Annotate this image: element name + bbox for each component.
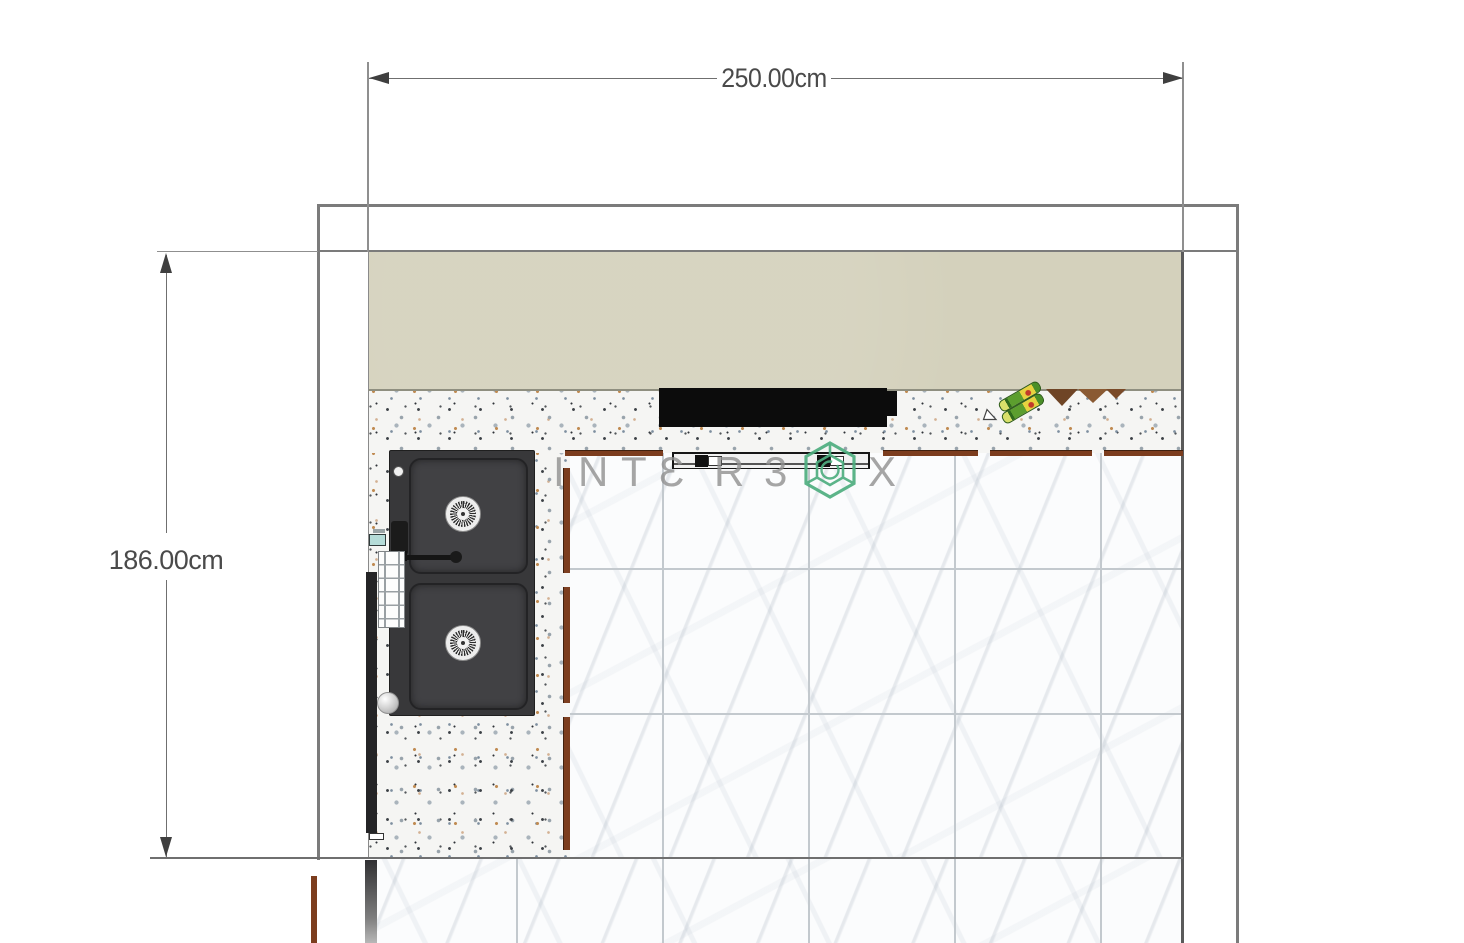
wall-left bbox=[317, 204, 320, 860]
drying-rack bbox=[378, 551, 405, 628]
range-hood-vents bbox=[824, 423, 860, 427]
watermark-letter: N bbox=[578, 451, 608, 493]
wall-shadow-strip bbox=[365, 860, 377, 943]
watermark-letter: 3 bbox=[764, 451, 787, 493]
dim-extension-line bbox=[157, 251, 318, 253]
watermark-letter: Ɛ bbox=[659, 451, 684, 493]
faucet-spout bbox=[403, 555, 455, 560]
drain-dot bbox=[461, 641, 465, 645]
interbox-hexagon-logo bbox=[802, 440, 858, 500]
shelf-zigzag-triangle bbox=[1106, 389, 1126, 399]
watermark-letter: R bbox=[714, 451, 744, 493]
dim-label-width: 250.00cm bbox=[706, 65, 842, 92]
drain-dot bbox=[461, 512, 465, 516]
dim-arrow-left bbox=[369, 72, 389, 84]
handle-clip bbox=[695, 455, 708, 467]
faucet-base bbox=[391, 521, 408, 555]
range-hood-tab bbox=[887, 391, 897, 416]
cabinet-side-edge bbox=[563, 717, 570, 850]
dim-arrow-up bbox=[160, 253, 172, 273]
dim-extension-line bbox=[367, 62, 369, 252]
dim-line-left bbox=[166, 580, 168, 857]
sink-drain bbox=[445, 625, 481, 661]
floor-plan-canvas: 250.00cm 186.00cm I N T Ɛ R 3 X bbox=[0, 0, 1464, 943]
faucet-tip bbox=[450, 551, 462, 563]
tile-grout-line bbox=[808, 453, 810, 943]
dim-line-top bbox=[831, 78, 1182, 80]
door-frame-strip bbox=[311, 876, 317, 943]
watermark-letter: T bbox=[621, 451, 647, 493]
cabinet-edge bbox=[990, 450, 1092, 456]
cabinet-edge bbox=[883, 450, 978, 456]
small-triangle-marker bbox=[982, 408, 998, 421]
tile-grout-line bbox=[1100, 453, 1102, 943]
watermark-letter: I bbox=[553, 451, 565, 493]
dim-arrow-right bbox=[1163, 72, 1183, 84]
tile-grout-line bbox=[570, 568, 1183, 570]
tile-grout-line bbox=[570, 713, 1183, 715]
watermark-letter: X bbox=[868, 451, 896, 493]
dim-extension-line bbox=[1182, 62, 1184, 252]
dispenser-tab bbox=[373, 529, 385, 533]
sink-corner-knob bbox=[393, 466, 404, 477]
wall-top-inner bbox=[317, 250, 1238, 252]
sink-drain bbox=[445, 496, 481, 532]
white-sphere-decor bbox=[377, 692, 399, 714]
upper-cabinet-band bbox=[368, 252, 1184, 391]
dim-line-top bbox=[369, 78, 717, 80]
cabinet-side-edge bbox=[563, 587, 570, 703]
shelf-zigzag-triangle bbox=[1078, 389, 1108, 403]
wall-top-outer bbox=[317, 204, 1238, 207]
dim-arrow-down bbox=[160, 837, 172, 857]
marble-floor-lower bbox=[373, 859, 1183, 943]
rack-rail bbox=[398, 552, 400, 627]
tile-grout-line bbox=[662, 453, 664, 943]
wall-right bbox=[1236, 204, 1239, 943]
dim-label-height: 186.00cm bbox=[96, 544, 236, 577]
double-bowl-sink bbox=[389, 450, 535, 716]
rack-rail bbox=[384, 552, 386, 627]
shelf-zigzag-triangle bbox=[1046, 389, 1078, 406]
dim-line-left bbox=[166, 255, 168, 533]
tile-grout-line bbox=[954, 453, 956, 943]
wall-bracket bbox=[369, 833, 384, 840]
cabinet-edge bbox=[1104, 450, 1183, 456]
soap-dispenser bbox=[369, 534, 386, 546]
room-right-inner-edge bbox=[1181, 252, 1184, 943]
range-hood bbox=[659, 388, 887, 427]
tile-grout-line bbox=[516, 859, 518, 943]
wall-dark-bar bbox=[366, 572, 377, 833]
dim-extension-and-counter-edge bbox=[150, 857, 1183, 859]
